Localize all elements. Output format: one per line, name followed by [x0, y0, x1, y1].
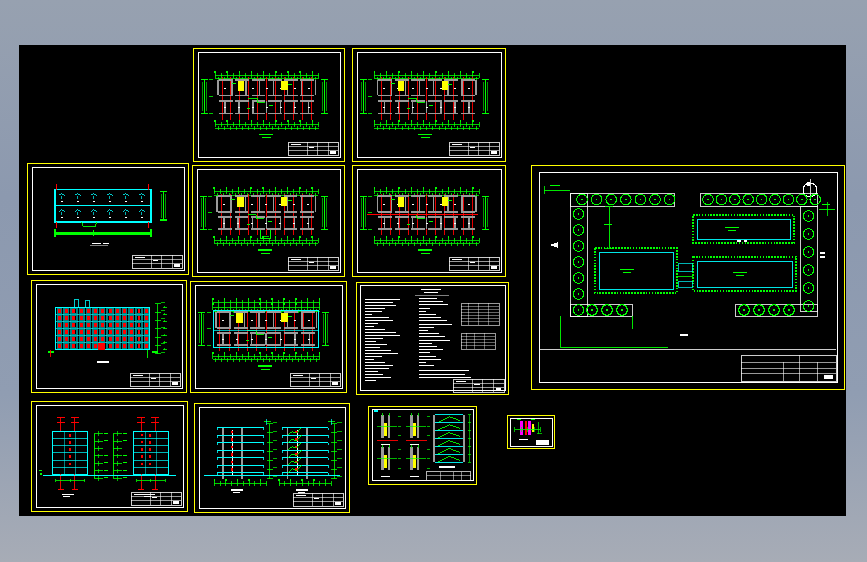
- building-sections-drawing: [195, 404, 349, 512]
- stair-details-drawing: [369, 407, 476, 484]
- sheet-ground-floor-plan: [192, 165, 345, 277]
- sheet-site-plan: [531, 165, 845, 390]
- sheet-building-sections: [194, 403, 350, 513]
- site-plan-drawing: [532, 166, 844, 389]
- front-elevation-drawing: [32, 281, 186, 392]
- side-elevations-drawing: [32, 402, 187, 511]
- page-background: { "palette":{ "bg_top":"#97a1b0","bg_bot…: [0, 0, 867, 562]
- design-notes-drawing: [357, 283, 508, 394]
- sheet-floor-plan-b: [352, 48, 506, 162]
- floor-plan-b-drawing: [353, 49, 505, 161]
- node-detail-drawing: [508, 416, 554, 448]
- floor-plan-c-drawing: [353, 166, 505, 276]
- sheet-stair-details: [368, 406, 477, 485]
- drawing-canvas[interactable]: [19, 45, 846, 516]
- sheet-floor-plan-d: [190, 281, 347, 393]
- sheet-side-elevations: [31, 401, 188, 512]
- ground-floor-plan-drawing: [193, 166, 344, 276]
- sheet-front-elevation: [31, 280, 187, 393]
- roof-plan-drawing: [28, 164, 188, 274]
- sheet-design-notes: [356, 282, 509, 395]
- sheet-floor-plan-a: [193, 48, 345, 162]
- sheet-roof-plan: [27, 163, 189, 275]
- floor-plan-d-drawing: [191, 282, 346, 392]
- sheet-floor-plan-c: [352, 165, 506, 277]
- floor-plan-a-drawing: [194, 49, 344, 161]
- sheet-node-detail: [507, 415, 555, 449]
